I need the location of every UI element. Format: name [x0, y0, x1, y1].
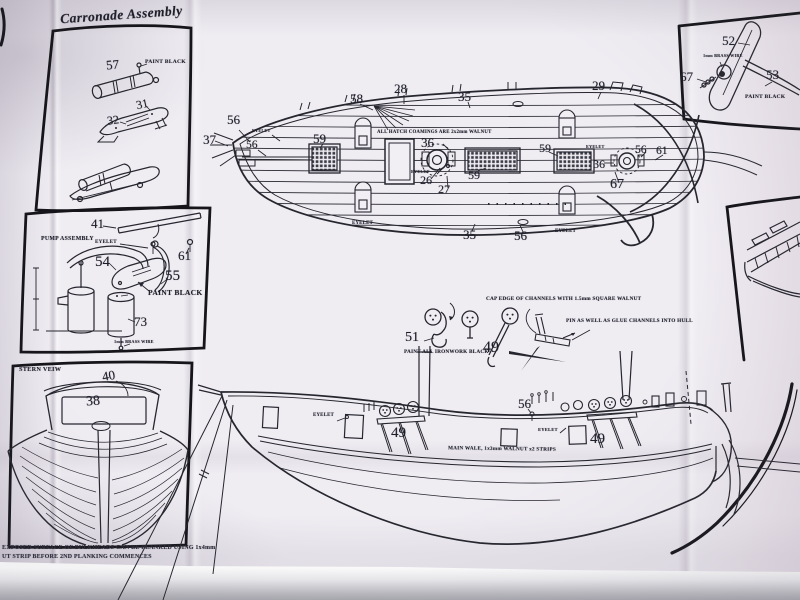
framework-panel-border: [727, 197, 800, 360]
photo-of-instruction-sheet: { "carronade": { "title": "Carronade Ass…: [0, 0, 800, 600]
callout-59-c: 59: [539, 142, 551, 154]
cap-edge-note: CAP EDGE OF CHANNELS WITH 1.5mm SQUARE W…: [486, 297, 641, 302]
pump-brass-wire-note: 1mm BRASS WIRE: [114, 340, 154, 344]
pin-glue-note: PIN AS WELL AS GLUE CHANNELS INTO HULL: [566, 319, 693, 324]
callout-56-bow-a: 56: [227, 113, 240, 126]
callout-55: 55: [165, 269, 180, 284]
callout-54: 54: [95, 255, 110, 270]
ironwork-paint-note: PAINT ALL IRONWORK BLACK: [404, 350, 489, 355]
callout-61: 61: [178, 249, 191, 262]
callout-35-top: 35: [458, 90, 471, 103]
callout-52: 52: [722, 34, 735, 47]
pump-paint-black-note: PAINT BLACK: [148, 289, 203, 297]
rudder-brass-wire-note: 1mm BRASS WIRE: [703, 54, 743, 58]
callout-56-stern: 56: [635, 145, 647, 157]
callout-38: 38: [86, 395, 101, 410]
callout-40: 40: [101, 368, 116, 383]
callout-35-bottom: 35: [463, 228, 476, 241]
callout-73: 73: [134, 315, 147, 328]
callout-31: 31: [135, 97, 149, 111]
carronade-drawing: [70, 63, 168, 202]
callout-67-stern: 67: [610, 178, 624, 192]
stern-view-title: STERN VEIW: [19, 367, 61, 373]
callout-67-rudder: 67: [680, 70, 693, 83]
rudder-panel-border: [679, 13, 800, 129]
deck-eyelet-bottom-right: EYELET: [555, 230, 576, 235]
callout-26: 26: [420, 174, 432, 186]
pump-eyelet-label: EYELET: [95, 240, 117, 245]
callout-59-a: 59: [313, 132, 326, 145]
callout-56-profile: 56: [518, 397, 531, 410]
footer-line-1: EXPOSED SURFACE OF BULKHEADS CAN BE PLAN…: [2, 545, 215, 551]
callout-32: 32: [106, 113, 120, 127]
callout-37: 37: [203, 133, 216, 146]
callout-53: 53: [766, 68, 779, 81]
callout-36-a: 36: [421, 136, 434, 149]
callout-58: 58: [350, 92, 363, 105]
hull-profile-drawing: [118, 346, 800, 600]
deck-eyelet-bottom-left: EYELET: [352, 222, 373, 227]
callout-57: 57: [105, 57, 119, 71]
callout-56-bottom: 56: [514, 229, 527, 242]
callout-29: 29: [592, 79, 605, 92]
hull-framework-drawing: [745, 221, 800, 297]
callout-49-fore-channel: 49: [391, 426, 406, 441]
profile-eyelet-right: EYELET: [538, 428, 558, 433]
deck-eyelet-stern: EYELET: [586, 145, 605, 149]
deck-plan-drawing: [210, 82, 762, 245]
deck-eyelet-bow: EYELET: [252, 129, 271, 133]
callout-59-b: 59: [468, 169, 480, 181]
carronade-paint-black-note: PAINT BLACK: [145, 60, 186, 66]
hatch-coaming-note: ALL HATCH COAMINGS ARE 2x2mm WALNUT: [377, 131, 492, 136]
callout-56-bow-b: 56: [246, 140, 258, 152]
pump-title: PUMP ASSEMBLY: [41, 237, 94, 243]
callout-27: 27: [438, 183, 450, 195]
callout-41: 41: [91, 217, 104, 230]
footer-line-2: UT STRIP BEFORE 2ND PLANKING COMMENCES: [2, 554, 152, 560]
callout-49-main-channel: 49: [590, 432, 605, 447]
deadeye-channel-detail-drawing: [424, 303, 590, 371]
profile-eyelet-left: EYELET: [313, 414, 334, 419]
callout-28: 28: [394, 82, 407, 95]
callout-61-stern: 61: [656, 146, 668, 158]
callout-49-mid: 49: [483, 340, 499, 356]
rudder-paint-black-note: PAINT BLACK: [745, 95, 785, 101]
callout-36-b: 36: [593, 158, 605, 170]
callout-51: 51: [405, 331, 419, 345]
